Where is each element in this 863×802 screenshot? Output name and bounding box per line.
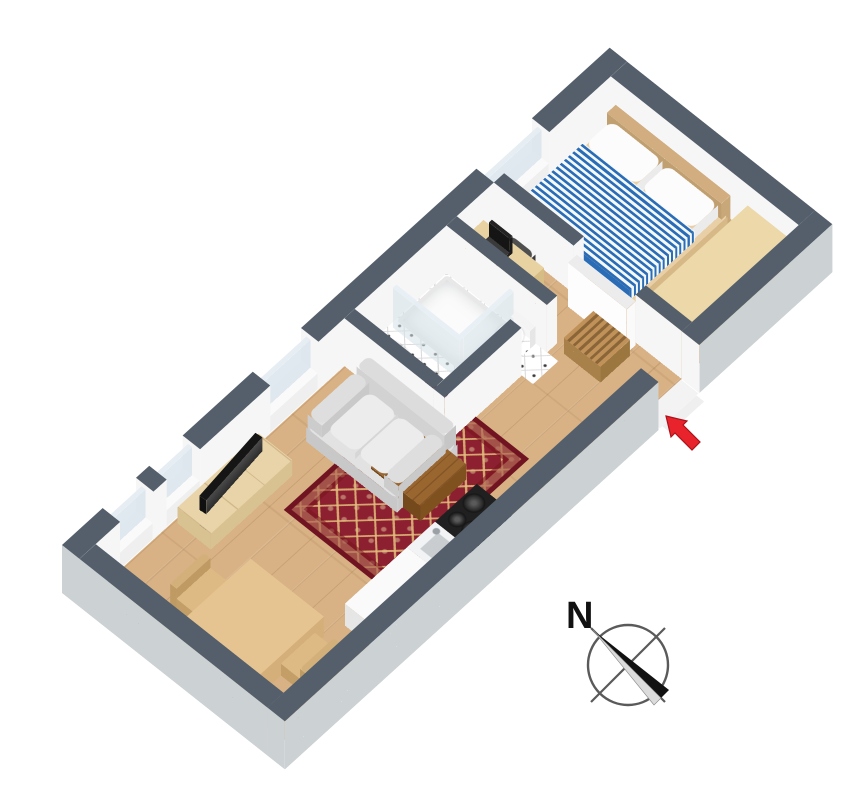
laptop-screen-side [510, 236, 513, 256]
compass-rose: N [552, 578, 722, 748]
entrance-arrow-icon [664, 414, 706, 456]
entrance-arrow-shape [666, 416, 700, 450]
compass-north-label: N [566, 595, 593, 637]
floor-plan-canvas: N [0, 0, 863, 802]
wall-bathroom-side [547, 296, 557, 353]
